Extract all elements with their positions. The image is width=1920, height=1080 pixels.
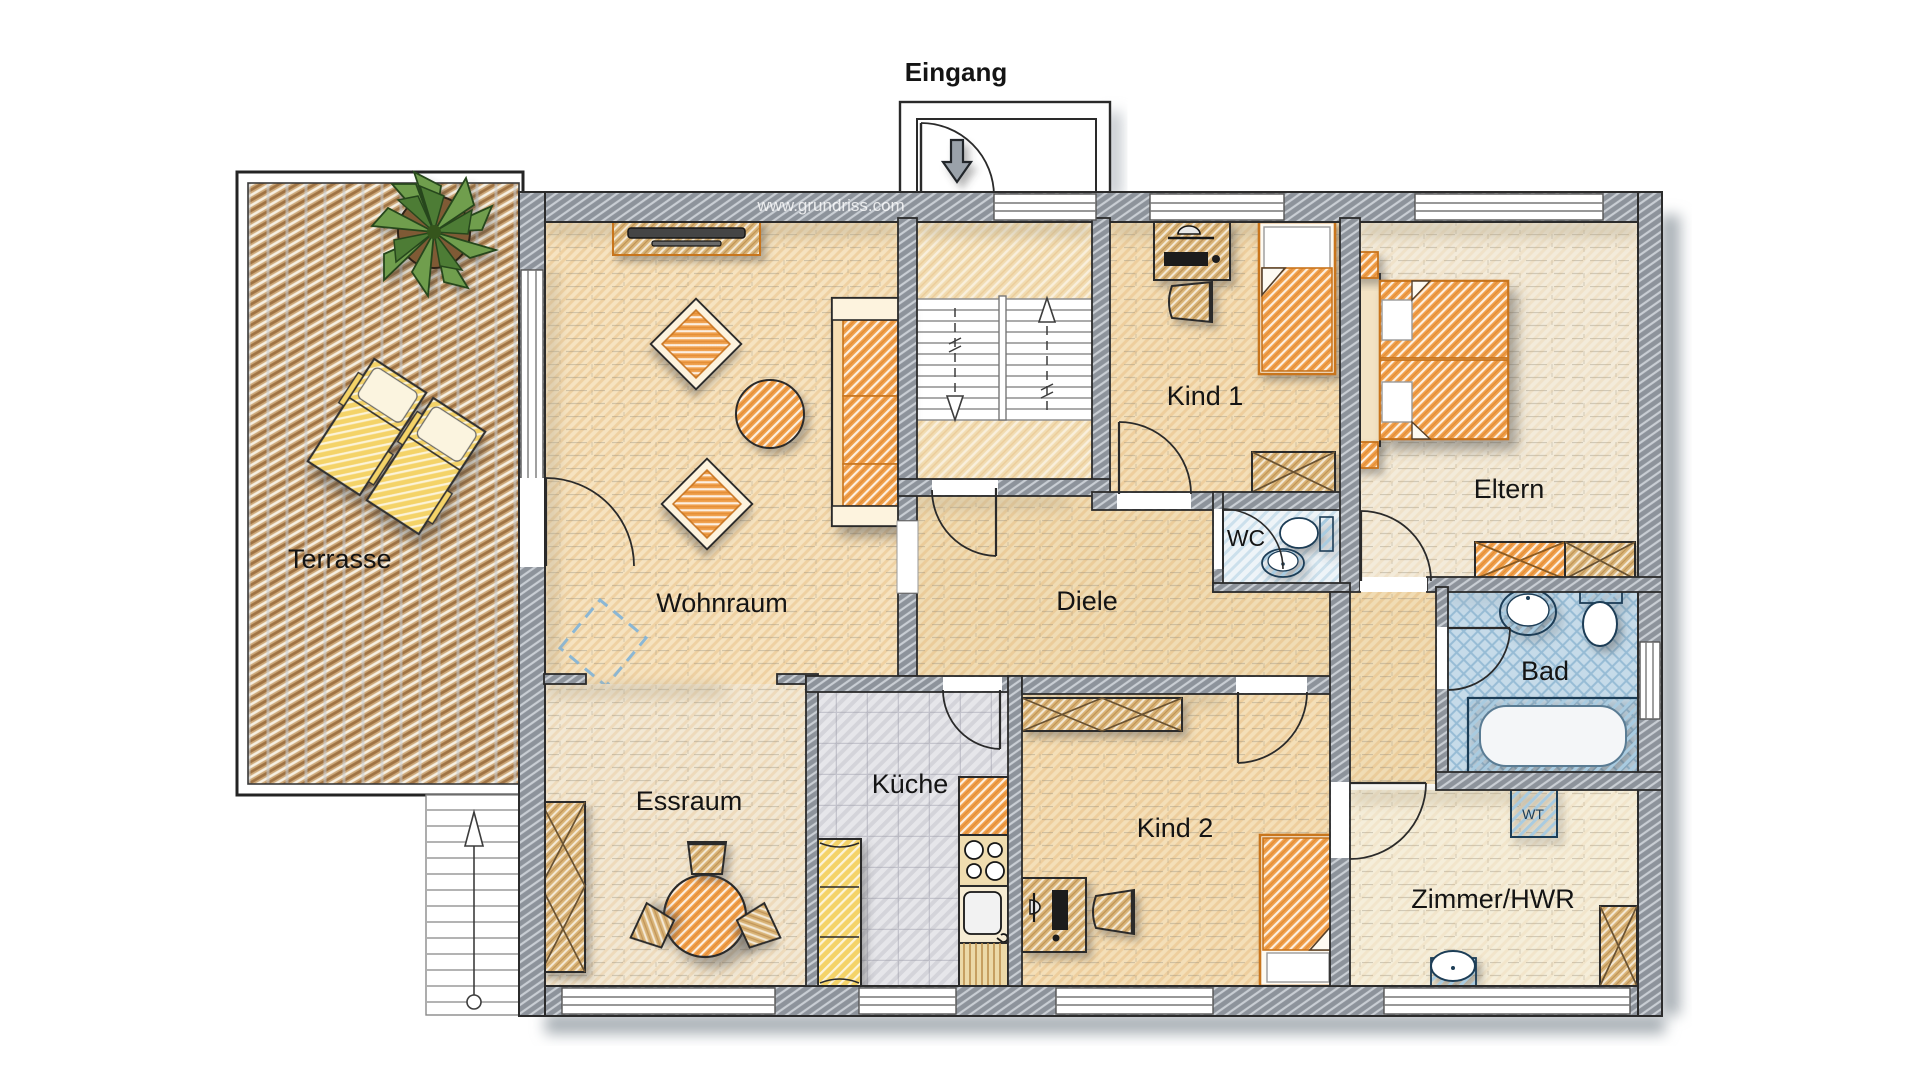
- svg-text:Küche: Küche: [872, 769, 949, 799]
- svg-text:Essraum: Essraum: [636, 786, 743, 816]
- svg-text:Eltern: Eltern: [1474, 474, 1545, 504]
- svg-text:WT: WT: [1522, 806, 1544, 822]
- svg-text:Terrasse: Terrasse: [288, 544, 392, 574]
- svg-text:Kind 2: Kind 2: [1137, 813, 1214, 843]
- svg-text:Zimmer/HWR: Zimmer/HWR: [1411, 884, 1574, 914]
- svg-text:Eingang: Eingang: [905, 57, 1008, 87]
- svg-text:www.grundriss.com: www.grundriss.com: [756, 196, 904, 215]
- svg-text:Diele: Diele: [1056, 586, 1118, 616]
- svg-text:Kind 1: Kind 1: [1167, 381, 1244, 411]
- svg-text:Wohnraum: Wohnraum: [656, 588, 788, 618]
- svg-text:Bad: Bad: [1521, 656, 1569, 686]
- svg-text:WC: WC: [1227, 525, 1265, 551]
